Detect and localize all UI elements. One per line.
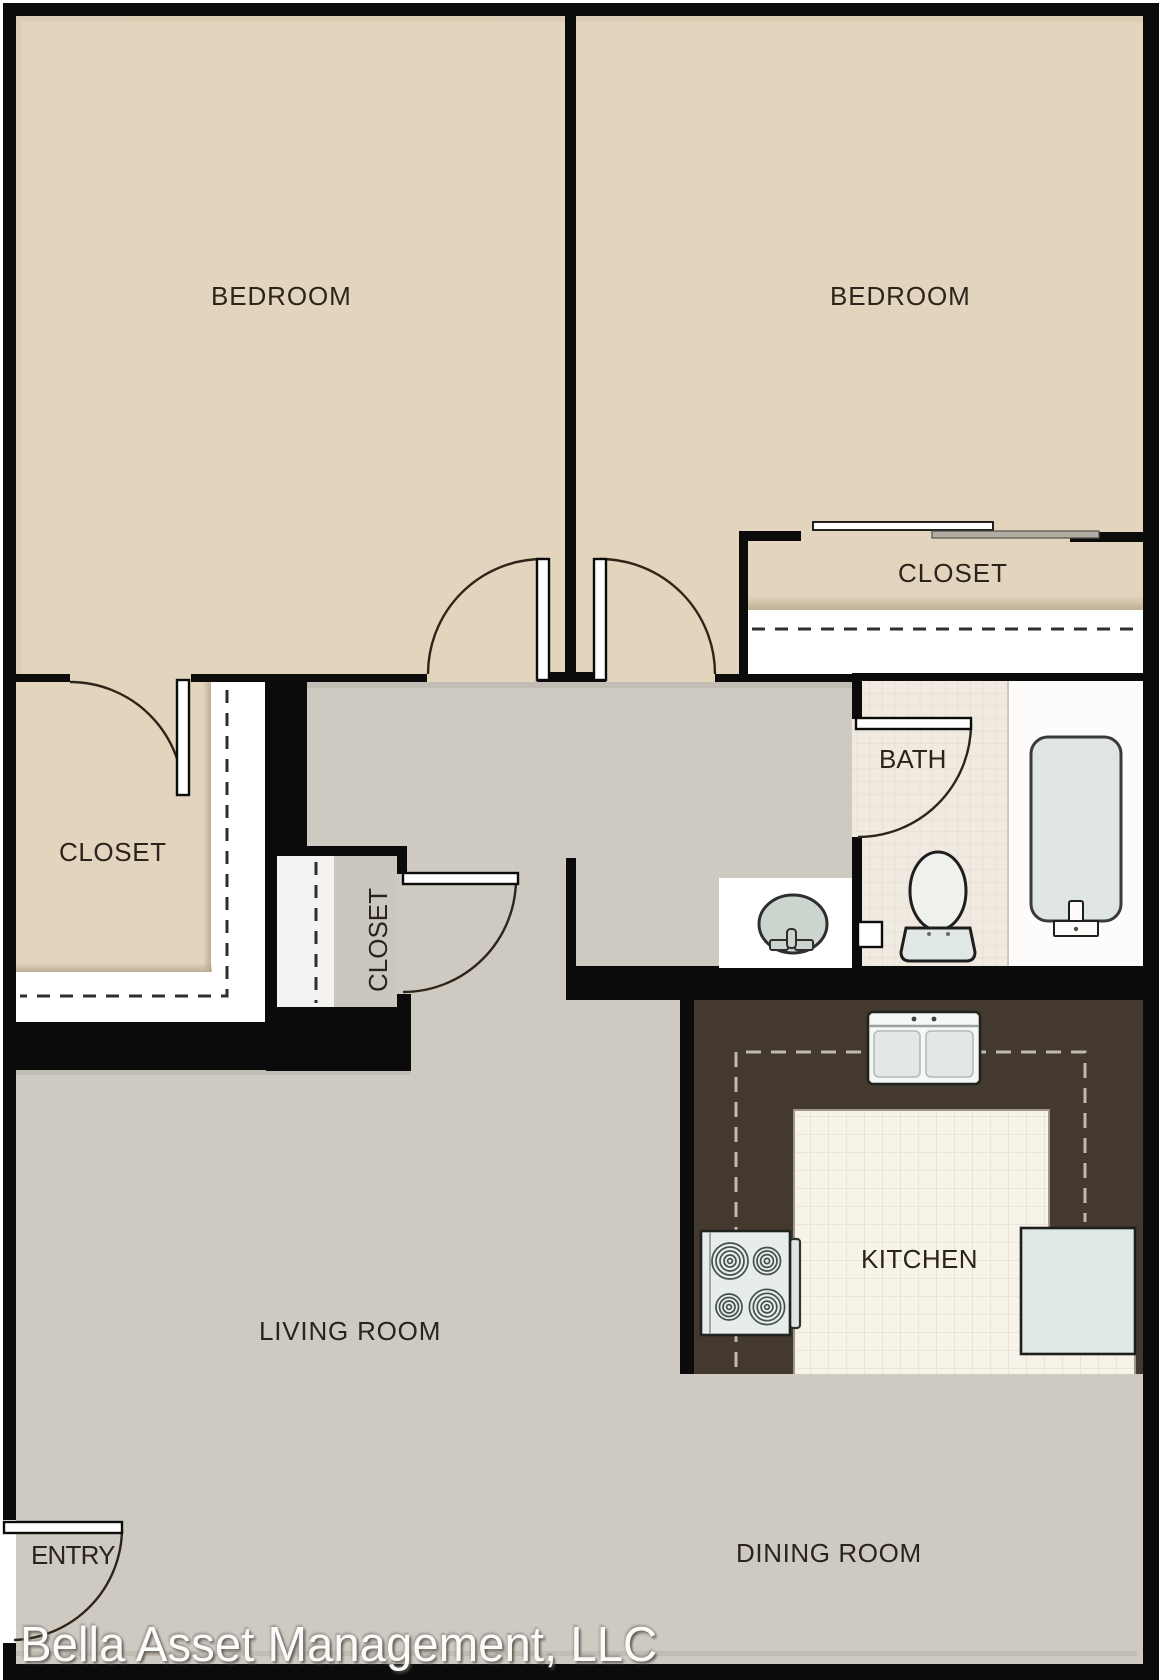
svg-text:BEDROOM: BEDROOM bbox=[211, 281, 352, 311]
svg-text:DINING ROOM: DINING ROOM bbox=[736, 1538, 922, 1568]
svg-text:LIVING ROOM: LIVING ROOM bbox=[259, 1316, 441, 1346]
svg-text:BEDROOM: BEDROOM bbox=[830, 281, 971, 311]
svg-text:Bella Asset Management, LLC: Bella Asset Management, LLC bbox=[20, 1617, 657, 1672]
svg-text:BATH: BATH bbox=[879, 744, 946, 774]
svg-text:CLOSET: CLOSET bbox=[59, 837, 167, 867]
svg-text:KITCHEN: KITCHEN bbox=[861, 1244, 978, 1274]
svg-text:CLOSET: CLOSET bbox=[898, 558, 1008, 588]
svg-text:ENTRY: ENTRY bbox=[31, 1540, 115, 1570]
svg-text:CLOSET: CLOSET bbox=[363, 888, 393, 992]
